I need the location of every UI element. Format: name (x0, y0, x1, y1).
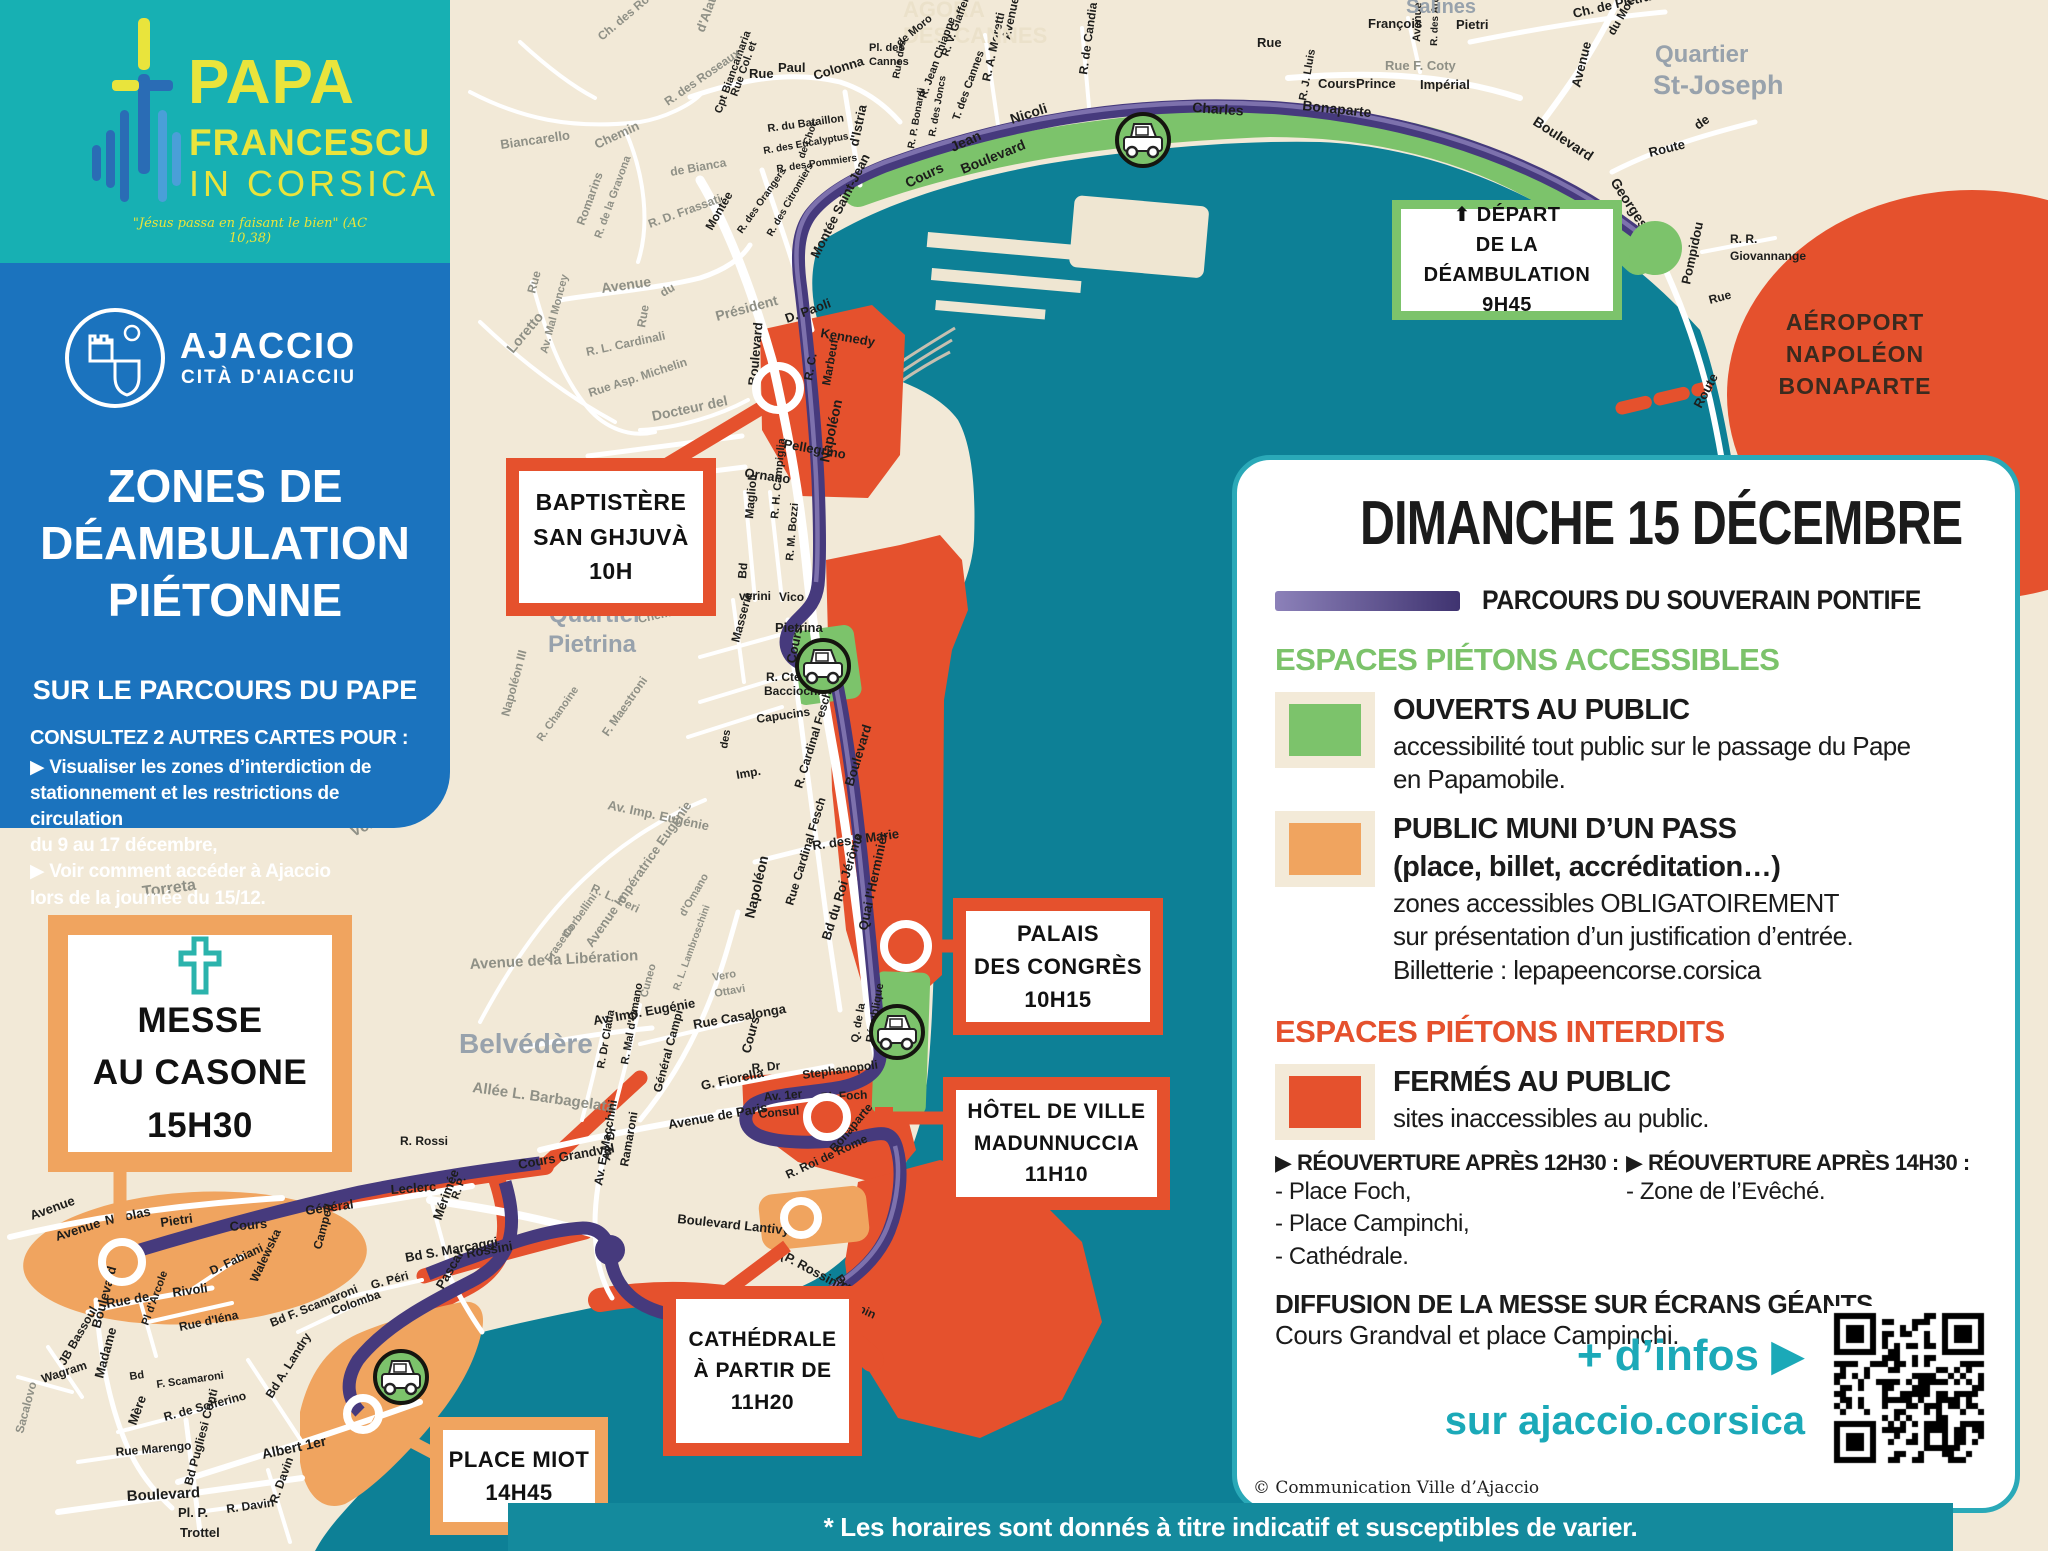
legend-open: OUVERTS AU PUBLIC accessibilité tout pub… (1275, 692, 1977, 797)
legend-route: PARCOURS DU SOUVERAIN PONTIFE (1275, 585, 1977, 616)
forbidden-heading: ESPACES PIÉTONS INTERDITS (1275, 1014, 1977, 1050)
callout-line: BAPTISTÈRE (536, 485, 687, 520)
street-label: Pietrina (548, 631, 637, 658)
city-info-block: AJACCIO CITÀ D'AIACCIU ZONES DE DÉAMBULA… (0, 263, 450, 828)
svg-text:BONAPARTE: BONAPARTE (1779, 373, 1932, 399)
street-label: Prince (1356, 76, 1396, 91)
street-label: Leclerc (390, 1179, 436, 1197)
cross-icon (177, 935, 223, 995)
callout-hotel: HÔTEL DE VILLEMADUNNUCCIA11H10 (943, 1077, 1170, 1210)
route-roundabout (595, 1235, 625, 1265)
callout-line: MESSE (137, 995, 262, 1048)
closed-swatch (1275, 1064, 1375, 1140)
callout-messe: MESSEAU CASONE15H30 (48, 915, 352, 1172)
street-label: St-Joseph (1653, 70, 1784, 100)
street-label: Pietri (1456, 17, 1489, 32)
legend-panel: DIMANCHE 15 DÉCEMBRE PARCOURS DU SOUVERA… (1232, 455, 2020, 1513)
street-label: Paul (778, 60, 805, 75)
callout-line: SAN GHJUVÀ (533, 520, 689, 555)
callout-line: 9H45 (1482, 290, 1532, 320)
callout-line: CATHÉDRALE (688, 1324, 836, 1356)
city-subtitle: CITÀ D'AIACCIU (181, 367, 356, 389)
poster-title: ZONES DE DÉAMBULATION PIÉTONNE (0, 458, 450, 629)
callout-line: 10H (589, 554, 633, 589)
callout-line: MADUNNUCCIA (974, 1128, 1139, 1160)
papamobile-icon (1117, 114, 1169, 166)
svg-text:NAPOLÉON: NAPOLÉON (1786, 340, 1924, 367)
street-label: Quartier (1655, 41, 1748, 68)
event-logo-block: PAPA FRANCESCU IN CORSICA "Jésus passa e… (0, 0, 450, 263)
consult-note: CONSULTEZ 2 AUTRES CARTES POUR : ▶ Visua… (30, 725, 425, 912)
callout-palais: PALAISDES CONGRÈS10H15 (953, 898, 1163, 1035)
more-info: + d’infos ▶ sur ajaccio.corsica (1445, 1330, 1805, 1444)
callout-line: PLACE MIOT (449, 1443, 590, 1476)
street-label: Rue (749, 66, 774, 81)
brand-in-corsica: IN CORSICA (189, 163, 439, 205)
city-name: AJACCIO (180, 325, 356, 367)
legend-pass: PUBLIC MUNI D’UN PASS (place, billet, ac… (1275, 811, 1977, 988)
brand-francescu: FRANCESCU (189, 122, 430, 164)
poster: AÉROPORT NAPOLÉON BONAPARTE CoursJeanBou… (0, 0, 2048, 1551)
open-swatch (1275, 692, 1375, 768)
callout-line: 15H30 (147, 1100, 253, 1153)
ajaccio-crest-icon (60, 303, 170, 413)
street-label: Rue F. Coty (1385, 58, 1457, 73)
street-label: Rue (1257, 35, 1282, 50)
street-label: Giovannange (1730, 249, 1806, 263)
street-label: Impérial (1420, 77, 1470, 92)
callout-baptistere: BAPTISTÈRESAN GHJUVÀ10H (506, 458, 716, 616)
papamobile-icon (871, 1006, 923, 1058)
street-label: Belvédère (459, 1028, 593, 1059)
pass-swatch (1275, 811, 1375, 887)
street-label: R. R. (1730, 232, 1757, 246)
street-label: AGORA (903, 0, 985, 22)
callout-line: 11H10 (1025, 1159, 1088, 1191)
callout-line: PALAIS (1017, 917, 1099, 950)
callout-line: À PARTIR DE (693, 1355, 831, 1387)
papamobile-icon (797, 640, 849, 692)
website-label: sur ajaccio.corsica (1445, 1399, 1805, 1444)
street-label: Bd (735, 562, 750, 579)
callout-line: HÔTEL DE VILLE (967, 1096, 1145, 1128)
route-label: PARCOURS DU SOUVERAIN PONTIFE (1482, 585, 1921, 616)
legend-closed: FERMÉS AU PUBLIC sites inaccessibles au … (1275, 1064, 1977, 1140)
depart-marker (1628, 221, 1682, 275)
callout-line: 11H20 (731, 1387, 794, 1419)
brand-tagline: "Jésus passa en faisant le bien" (AC 10,… (110, 216, 390, 246)
street-label: Salines (1406, 0, 1476, 18)
accessible-heading: ESPACES PIÉTONS ACCESSIBLES (1275, 642, 1977, 678)
svg-text:AÉROPORT: AÉROPORT (1786, 308, 1924, 335)
callout-cathedrale: CATHÉDRALEÀ PARTIR DE11H20 (663, 1286, 862, 1456)
footer-note-bar: * Les horaires sont donnés à titre indic… (508, 1503, 1953, 1551)
qr-code (1827, 1306, 1991, 1470)
panel-title: DIMANCHE 15 DÉCEMBRE (1275, 488, 1977, 559)
footer-note: * Les horaires sont donnés à titre indic… (824, 1512, 1638, 1543)
reopening-info: ▶ RÉOUVERTURE APRÈS 12H30 : - Place Foch… (1275, 1150, 1977, 1273)
street-label: R. Rossi (400, 1134, 448, 1148)
callout-line: 10H15 (1024, 983, 1091, 1016)
route-line-swatch (1275, 591, 1460, 611)
copyright: © Communication Ville d’Ajaccio (1253, 1478, 1539, 1498)
street-label: Bd (129, 1369, 145, 1383)
callout-line: DES CONGRÈS (974, 950, 1142, 983)
street-label: Trottel (180, 1525, 220, 1540)
street-label: Cours (1318, 76, 1356, 91)
more-info-label: + d’infos ▶ (1445, 1330, 1805, 1381)
street-label: Vico (779, 590, 804, 604)
callout-depart: ⬆ DÉPARTDE LA DÉAMBULATION9H45 (1392, 200, 1622, 320)
callout-line: DE LA DÉAMBULATION (1401, 230, 1613, 290)
callout-line: ⬆ DÉPART (1453, 200, 1560, 230)
street-label: Pl. P. (178, 1505, 208, 1520)
brand-papa: PAPA (188, 52, 355, 114)
poster-subtitle: SUR LE PARCOURS DU PAPE (0, 675, 450, 706)
callout-line: AU CASONE (93, 1047, 308, 1100)
papamobile-icon (375, 1351, 427, 1403)
